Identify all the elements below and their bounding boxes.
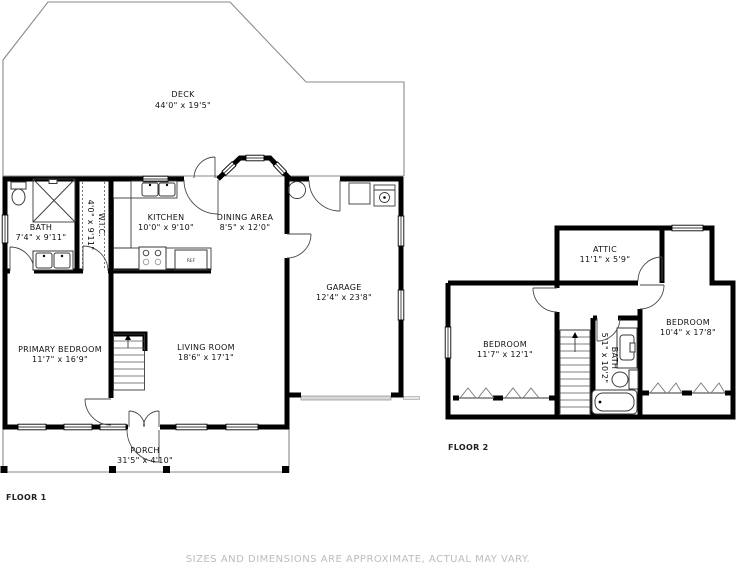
room-label-bath1: BATH [30,223,52,232]
room-dims-kitchen: 10'0" x 9'10" [138,223,194,232]
door-arc [129,411,145,427]
room-label-living: LIVING ROOM [177,343,235,352]
toilet [629,370,638,389]
disclaimer-text: SIZES AND DIMENSIONS ARE APPROXIMATE, AC… [186,554,530,564]
room-dims-deck: 44'0" x 19'5" [155,101,211,110]
room-label-deck: DECK [171,90,195,99]
kneewall-left-bedroom [453,388,557,401]
water-heater [289,182,306,199]
floor2-label: FLOOR 2 [448,443,489,452]
room-label-attic: ATTIC [593,245,617,254]
staircase-floor1 [114,334,145,390]
room-label-primary-bedroom: PRIMARY BEDROOM [18,345,102,354]
door-arc [10,247,34,271]
porch-post [109,466,116,473]
door-arc [638,257,662,281]
door-arc [194,157,215,178]
porch-post [163,466,170,473]
window [226,424,258,430]
room-label-dining: DINING AREA [217,213,274,222]
toilet [12,189,25,205]
faucet [61,255,63,257]
room-dims-bedroom-left: 11'7" x 12'1" [477,350,533,359]
window [445,327,451,358]
deck-outline [3,2,404,176]
room-label-porch: PORCH [130,446,159,455]
room-label-bedroom-left: BEDROOM [483,340,527,349]
floorplan-drawing: REF DECK 44'0" x 19'5" BATH 7'4" x 9'11"… [0,0,738,564]
room-label-wic: W.I.C. [97,213,106,237]
bay-window [273,162,286,175]
door-arc [85,399,111,425]
window [176,424,207,430]
door-arc [287,234,311,258]
faucet [149,184,151,186]
room-dims-attic: 11'1" x 5'9" [580,255,631,264]
faucet [43,255,45,257]
bay-window [246,155,264,161]
toilet [11,182,26,189]
porch-post [282,466,289,473]
faucet [166,184,168,186]
room-label-kitchen: KITCHEN [148,213,185,222]
shower [33,179,75,222]
room-dims-garage: 12'4" x 23'8" [316,293,372,302]
room-dims-bath2: 5'1" x 10'2" [600,333,609,384]
window [398,216,404,246]
floor2-doors [533,257,664,341]
drain [599,401,602,404]
room-dims-wic: 4'0" x 9'11" [86,200,95,251]
floor1-plan: REF DECK 44'0" x 19'5" BATH 7'4" x 9'11"… [1,2,420,502]
room-dims-bath1: 7'4" x 9'11" [16,233,67,242]
window [100,424,126,430]
staircase-floor2 [560,330,590,414]
toilet [612,372,628,387]
door-arc [533,288,557,312]
window [18,424,46,430]
window [672,225,703,231]
window [2,215,8,243]
porch-post [1,466,8,473]
door-arc [640,285,664,309]
floor1-label: FLOOR 1 [6,493,47,502]
room-dims-dining: 8'5" x 12'0" [220,223,271,232]
floor2-plan: ATTIC 11'1" x 5'9" BEDROOM 11'7" x 12'1"… [445,225,733,452]
dryer [349,183,370,204]
door-arc [184,180,218,214]
room-dims-bedroom-right: 10'4" x 17'8" [660,328,716,337]
floorplan-page: REF DECK 44'0" x 19'5" BATH 7'4" x 9'11"… [0,0,738,564]
room-dims-porch: 31'5" x 4'10" [117,456,173,465]
door-arc [309,180,340,211]
floor1-doors [10,157,340,462]
window [64,424,92,430]
room-dims-primary-bedroom: 11'7" x 16'9" [32,355,88,364]
room-label-bedroom-right: BEDROOM [666,318,710,327]
counter [114,198,132,248]
stove [139,247,166,270]
bay-window [222,162,236,176]
shower-head [49,180,57,184]
fridge-label: REF [187,258,196,264]
door-arc [144,411,160,427]
room-label-garage: GARAGE [326,283,361,292]
room-dims-living: 18'6" x 17'1" [178,353,234,362]
garage-fixtures [289,182,396,207]
window [398,290,404,320]
faucet [630,343,635,352]
kneewall-right-bedroom [642,383,731,396]
room-label-bath2: BATH [610,347,619,369]
